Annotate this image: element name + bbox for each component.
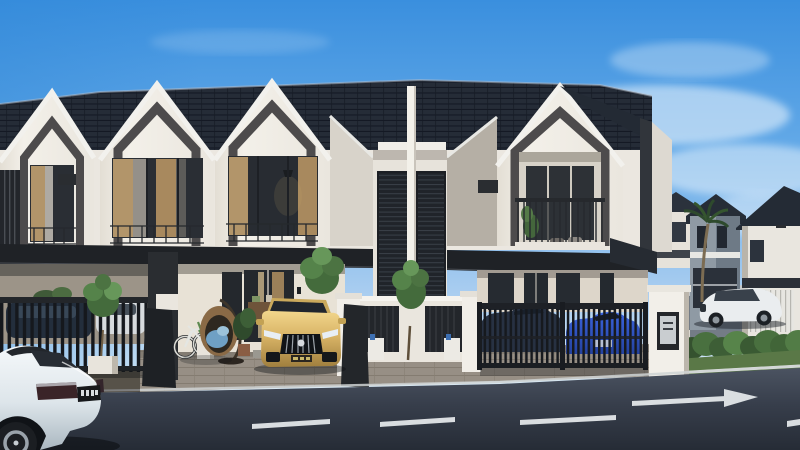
end-wall	[652, 122, 672, 252]
gated-driveway	[477, 270, 648, 370]
gate-leaf-open	[341, 304, 369, 388]
curtain	[156, 159, 176, 237]
architectural-render	[0, 0, 800, 450]
gate-pillar-cap	[156, 294, 181, 310]
balcony	[515, 152, 605, 250]
small-pot	[253, 350, 261, 358]
curtain	[229, 157, 248, 235]
wall-lamp	[776, 225, 786, 228]
mailbox-pillar	[647, 285, 691, 384]
doorbell-panel	[297, 287, 301, 294]
curtain	[31, 166, 45, 241]
vent-grille	[58, 174, 76, 185]
car-emblem	[298, 340, 305, 347]
vent-grille	[478, 180, 498, 193]
curtain	[113, 159, 133, 237]
side-mirror	[338, 318, 346, 324]
gate-leaf-open	[142, 308, 176, 388]
side-mirror	[256, 319, 264, 325]
